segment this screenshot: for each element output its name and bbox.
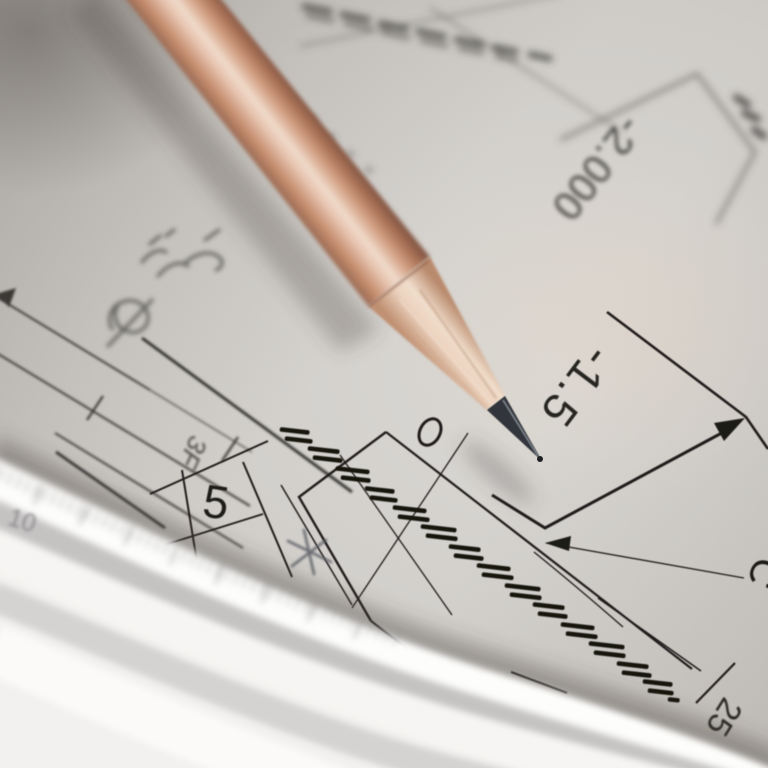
graphite-point [537, 456, 543, 462]
pencil-graphite-tip [487, 396, 542, 461]
pencil [121, 0, 543, 462]
photo-canvas: -2.000 -1.5 5 25 C 3F [0, 0, 768, 768]
foreground-objects [0, 0, 768, 768]
